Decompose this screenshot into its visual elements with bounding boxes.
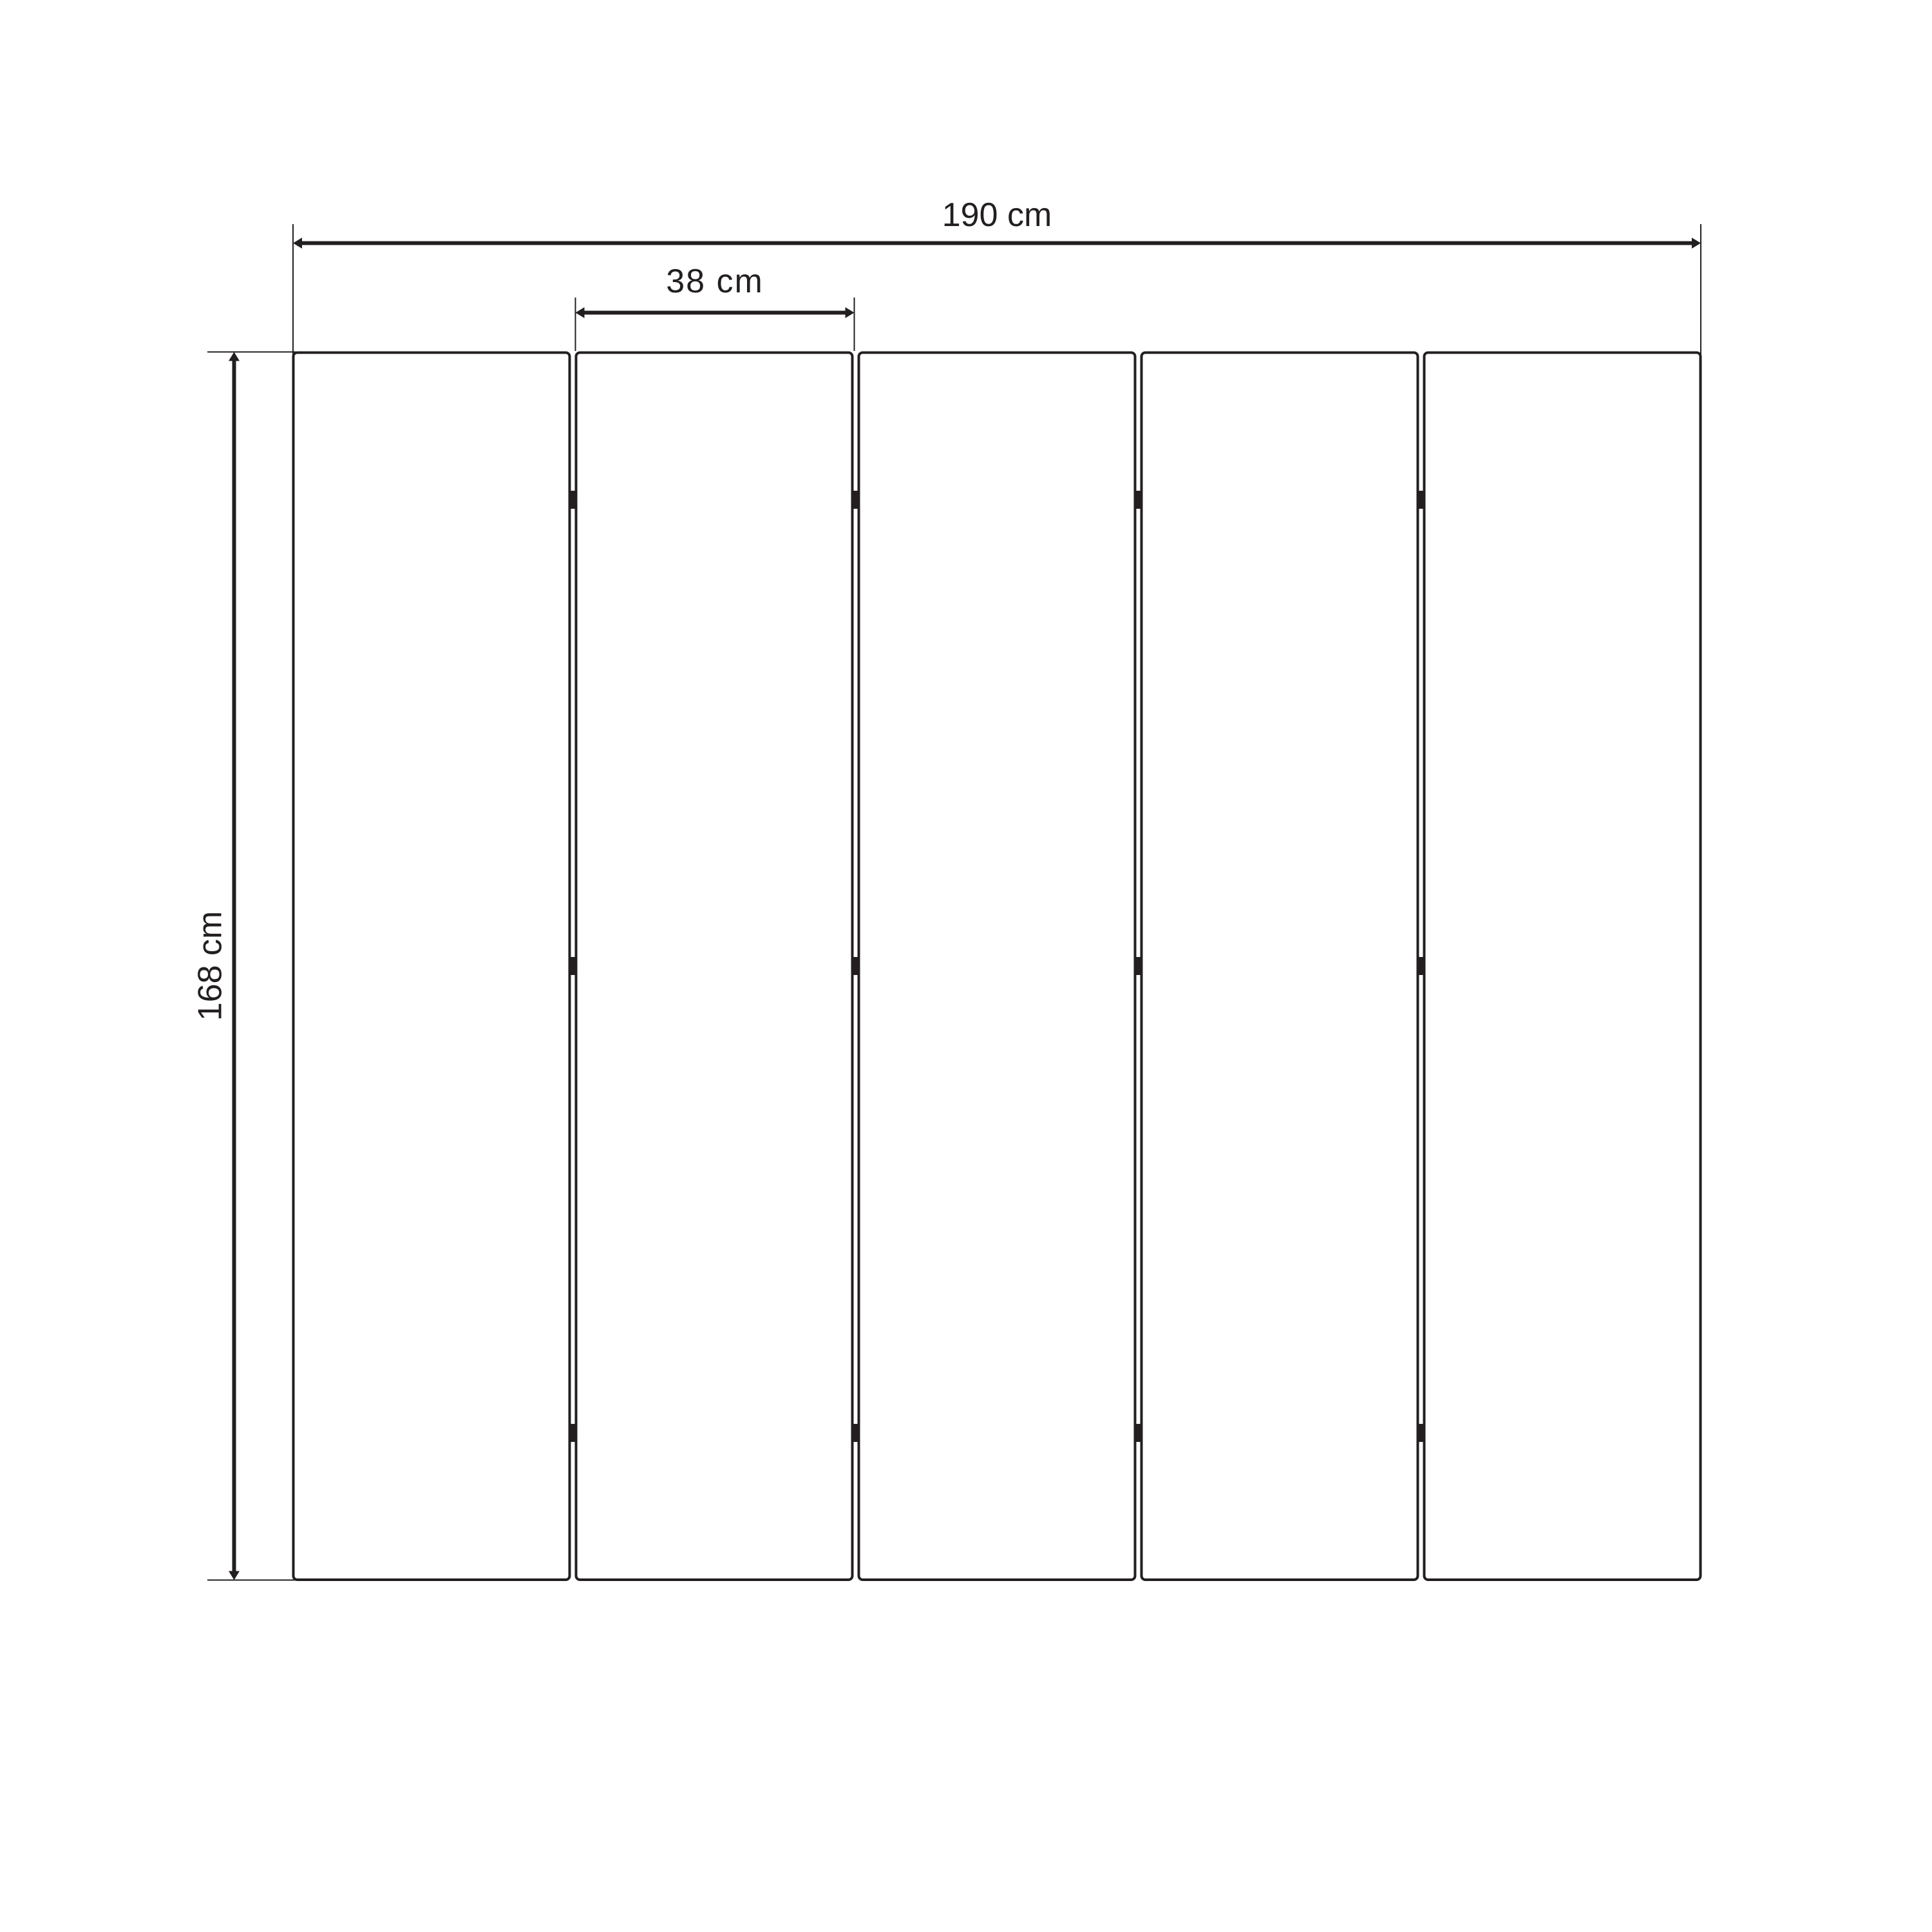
svg-text:190 cm: 190 cm <box>942 196 1052 234</box>
svg-text:168 cm: 168 cm <box>192 911 229 1021</box>
svg-text:38 cm: 38 cm <box>666 263 764 300</box>
